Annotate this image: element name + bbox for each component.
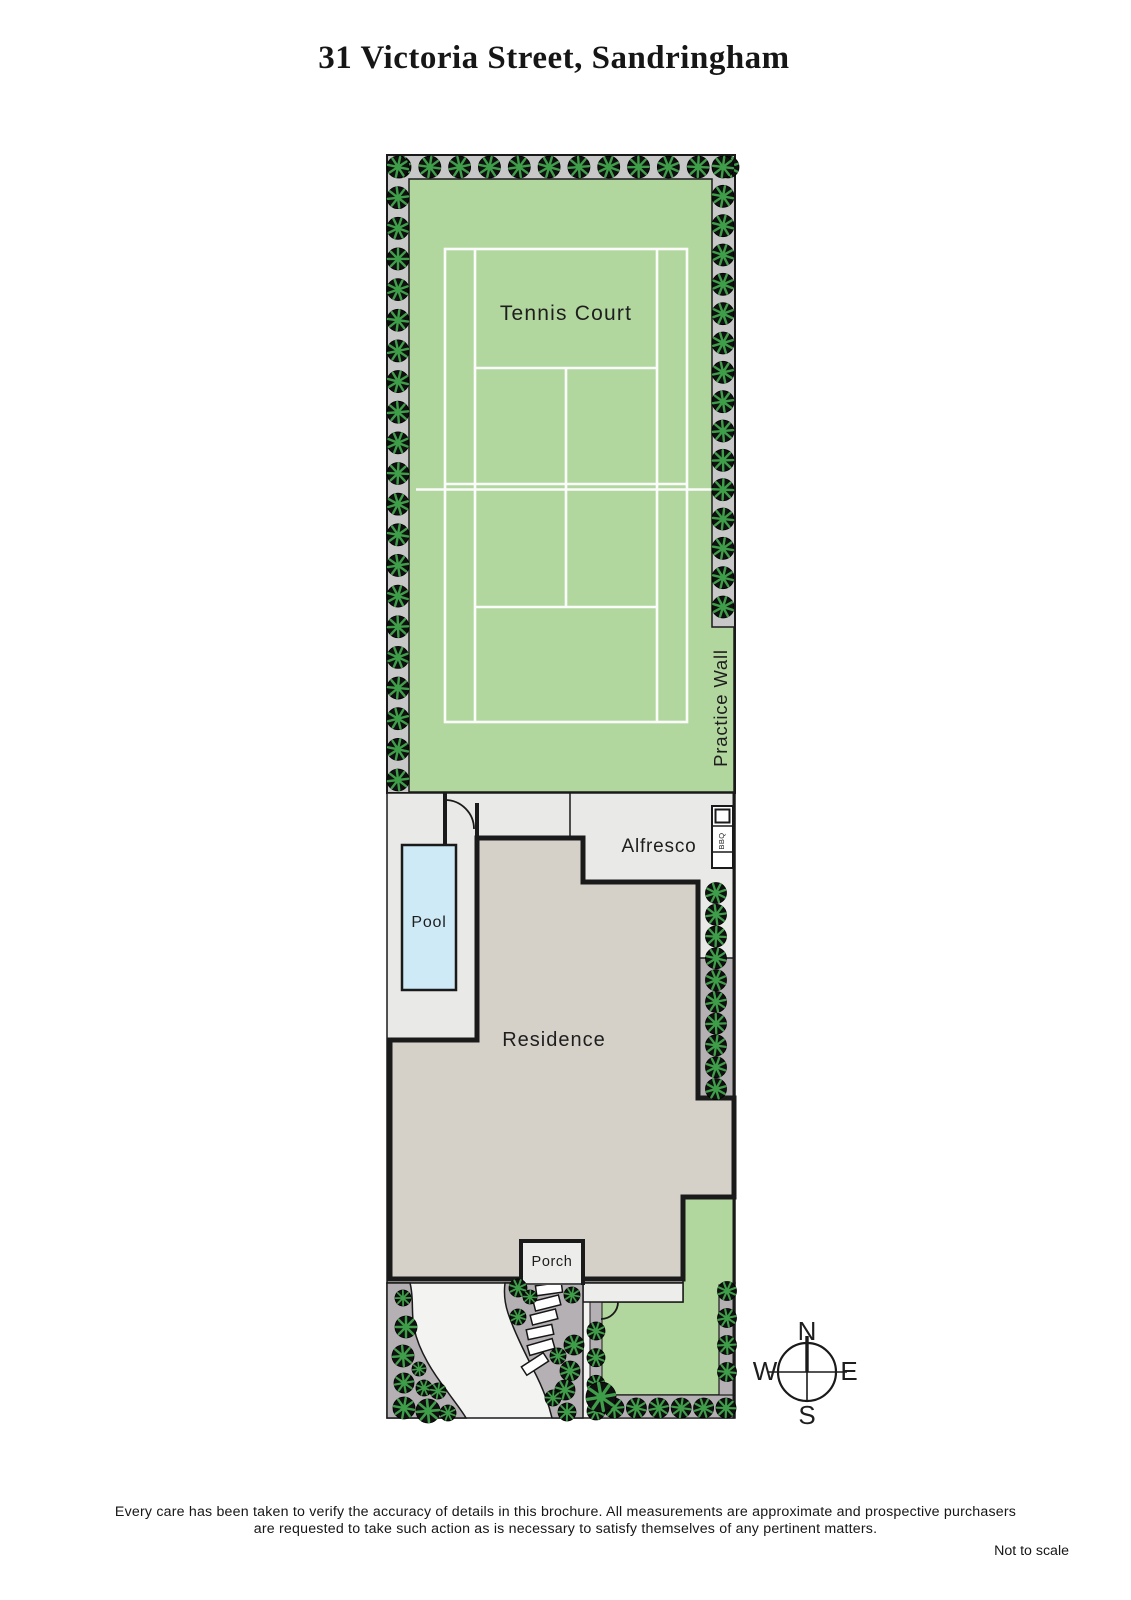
tree-icon: [706, 1035, 727, 1056]
compass-w-label: W: [753, 1356, 778, 1386]
tennis-lawn: [409, 179, 734, 792]
tree-icon: [712, 332, 734, 354]
tree-icon: [387, 432, 409, 454]
tree-icon: [560, 1361, 580, 1381]
tree-icon: [430, 1383, 446, 1399]
tree-icon: [712, 185, 734, 207]
tree-icon: [718, 1282, 737, 1301]
tree-icon: [706, 904, 727, 925]
tennis-court-label: Tennis Court: [500, 302, 632, 325]
tree-icon: [706, 970, 727, 991]
tree-icon: [387, 524, 409, 546]
tree-icon: [387, 738, 409, 760]
tree-icon: [510, 1309, 526, 1325]
tree-icon: [387, 463, 409, 485]
tree-icon: [387, 646, 409, 668]
tree-icon: [712, 303, 734, 325]
tree-icon: [440, 1405, 456, 1421]
bbq-label: BBQ: [717, 832, 726, 849]
tennis-zone: Tennis Court Practice Wall: [387, 155, 735, 793]
practice-wall-label: Practice Wall: [710, 649, 731, 767]
compass-n-label: N: [798, 1316, 817, 1346]
tree-icon: [419, 156, 441, 178]
tree-icon: [712, 508, 734, 530]
tree-icon: [718, 1336, 737, 1355]
porch-label: Porch: [532, 1254, 573, 1270]
tree-icon: [657, 156, 679, 178]
alfresco-label: Alfresco: [621, 836, 696, 857]
tree-icon: [628, 156, 650, 178]
tree-icon: [587, 1349, 605, 1367]
tree-icon: [568, 156, 590, 178]
tree-icon: [712, 567, 734, 589]
tree-icon: [712, 479, 734, 501]
tree-icon: [694, 1398, 714, 1418]
tree-icon: [706, 1013, 727, 1034]
tree-icon: [387, 708, 409, 730]
tree-icon: [716, 1398, 736, 1418]
tree-icon: [712, 391, 734, 413]
compass-e-label: E: [840, 1356, 857, 1386]
tree-icon: [712, 215, 734, 237]
compass-s-label: S: [798, 1400, 815, 1430]
tree-icon: [687, 156, 709, 178]
tree-icon: [387, 309, 409, 331]
tree-icon: [626, 1398, 646, 1418]
tree-icon: [395, 1316, 417, 1338]
tree-icon: [387, 371, 409, 393]
brochure-page: 31 Victoria Street, Sandringham Tennis C…: [0, 0, 1131, 1600]
tree-icon: [394, 1373, 414, 1393]
tree-icon: [706, 883, 727, 904]
tree-icon: [538, 156, 560, 178]
tree-icon: [387, 187, 409, 209]
side-path: [583, 1283, 683, 1302]
tree-icon: [387, 493, 409, 515]
tree-icon: [712, 273, 734, 295]
tree-icon: [706, 1057, 727, 1078]
tree-icon: [649, 1398, 669, 1418]
tree-icon: [387, 217, 409, 239]
tree-icon: [387, 769, 409, 791]
tree-icon: [564, 1287, 580, 1303]
tree-icon: [712, 361, 734, 383]
tree-icon: [392, 1345, 414, 1367]
tree-icon: [712, 537, 734, 559]
tree-icon: [508, 156, 530, 178]
tree-icon: [550, 1348, 566, 1364]
tree-icon: [387, 279, 409, 301]
residence-label: Residence: [502, 1029, 606, 1051]
tree-icon: [718, 1309, 737, 1328]
tree-icon: [478, 156, 500, 178]
disclaimer-line-1: Every care has been taken to verify the …: [0, 1504, 1131, 1521]
tree-icon: [712, 420, 734, 442]
tree-icon: [712, 449, 734, 471]
tree-icon: [387, 554, 409, 576]
tree-icon: [706, 948, 727, 969]
tree-icon: [706, 926, 727, 947]
disclaimer-line-2: are requested to take such action as is …: [0, 1521, 1131, 1538]
tree-icon: [706, 991, 727, 1012]
tree-icon: [598, 156, 620, 178]
tree-icon: [416, 1399, 440, 1423]
scale-note: Not to scale: [994, 1543, 1069, 1559]
tree-icon: [545, 1390, 561, 1406]
tree-icon: [449, 156, 471, 178]
tree-icon: [395, 1290, 411, 1306]
tree-icon: [587, 1322, 605, 1340]
tree-icon: [712, 596, 734, 618]
site-plan: Tennis Court Practice Wall: [0, 0, 1131, 1600]
tree-icon: [706, 1079, 727, 1100]
tree-icon: [718, 1363, 737, 1382]
hedge-west-column: [387, 156, 409, 791]
tree-icon: [387, 340, 409, 362]
tree-icon: [564, 1335, 584, 1355]
tree-icon: [712, 244, 734, 266]
tree-icon: [412, 1362, 426, 1376]
tree-icon: [523, 1290, 537, 1304]
compass-rose: N S W E: [753, 1316, 858, 1430]
tree-icon: [387, 156, 409, 178]
tree-icon: [712, 156, 734, 178]
tree-icon: [387, 585, 409, 607]
tree-icon: [387, 677, 409, 699]
tree-icon: [671, 1398, 691, 1418]
tree-icon: [558, 1403, 576, 1421]
pool-label: Pool: [411, 914, 446, 931]
lawn-corner-tree: [586, 1382, 616, 1412]
tree-icon: [387, 401, 409, 423]
tree-icon: [586, 1382, 616, 1412]
tree-icon: [387, 616, 409, 638]
tree-icon: [393, 1397, 415, 1419]
tree-icon: [387, 248, 409, 270]
bbq-unit: BBQ: [712, 806, 733, 868]
bbq-hotplate-icon: [716, 810, 730, 823]
tree-icon: [416, 1380, 432, 1396]
